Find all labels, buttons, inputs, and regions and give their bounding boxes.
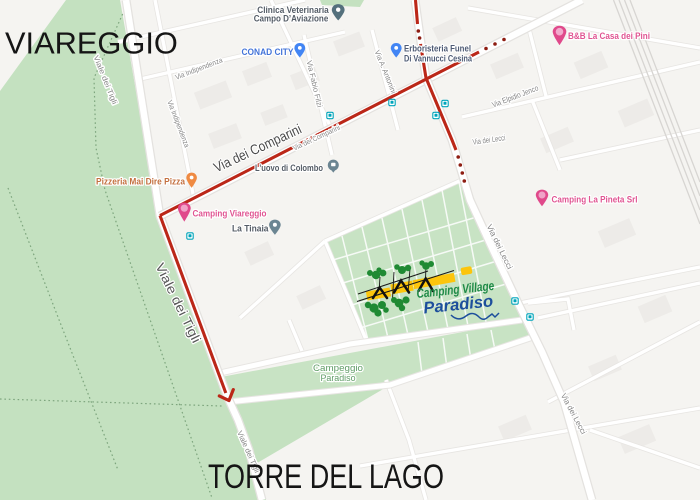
svg-text:Pizzeria Mai Dire Pizza: Pizzeria Mai Dire Pizza — [96, 176, 186, 187]
svg-text:Camping La Pineta Srl: Camping La Pineta Srl — [552, 194, 638, 205]
svg-text:La Tinaia: La Tinaia — [232, 224, 269, 235]
svg-text:VIAREGGIO: VIAREGGIO — [5, 26, 178, 61]
svg-text:Paradiso: Paradiso — [321, 373, 356, 384]
svg-text:CONAD CITY: CONAD CITY — [242, 47, 295, 58]
svg-text:Camping Viareggio: Camping Viareggio — [193, 208, 267, 219]
svg-text:L’uovo di Colombo: L’uovo di Colombo — [255, 163, 323, 173]
svg-text:B&B La Casa dei Pini: B&B La Casa dei Pini — [568, 30, 650, 41]
svg-text:TORRE DEL LAGO: TORRE DEL LAGO — [208, 458, 444, 496]
svg-text:Campo D’Aviazione: Campo D’Aviazione — [254, 14, 329, 24]
svg-text:Erboristeria Funel: Erboristeria Funel — [404, 44, 471, 54]
svg-text:Di Vannucci Cesina: Di Vannucci Cesina — [404, 54, 473, 64]
